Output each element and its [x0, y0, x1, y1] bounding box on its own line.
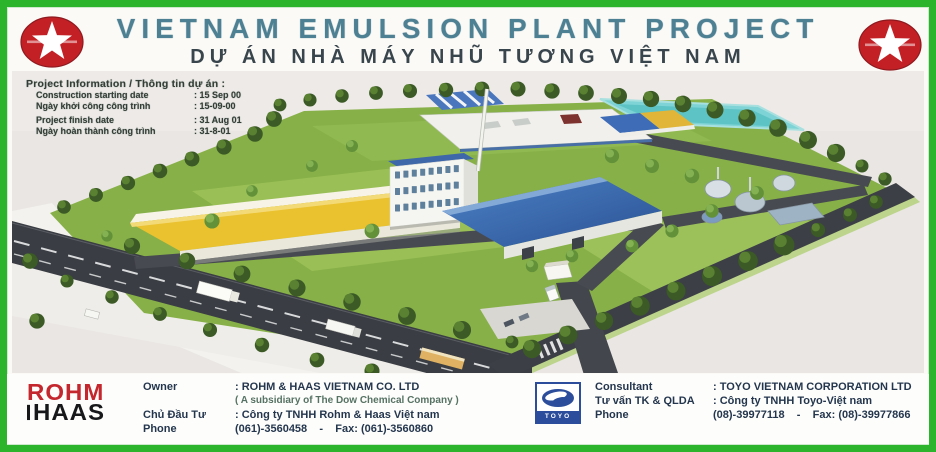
rohm-haas-logo: ROHM HAAS	[27, 383, 105, 423]
project-info-row: Ngày hoàn thành công trình : 31-8-01	[26, 126, 336, 137]
owner-row: ( A subsidiary of The Dow Chemical Compa…	[143, 394, 533, 408]
project-info-heading: Project Information / Thông tin dự án :	[26, 78, 336, 90]
red-star-logo-icon	[19, 14, 85, 70]
owner-block: Owner : ROHM & HAAS VIETNAM CO. LTD ( A …	[143, 380, 533, 436]
project-info-row: Construction starting date : 15 Sep 00	[26, 90, 336, 101]
consultant-row: Tư vấn TK & QLDA : Công ty TNHH Toyo-Việ…	[595, 394, 929, 408]
owner-row: Owner : ROHM & HAAS VIETNAM CO. LTD	[143, 380, 533, 394]
project-info-row: Project finish date : 31 Aug 01	[26, 115, 336, 126]
logo-bar-icon	[27, 405, 30, 420]
owner-row: Chủ Đầu Tư : Công ty TNHH Rohm & Haas Vi…	[143, 408, 533, 422]
red-star-logo-icon	[857, 17, 923, 73]
project-billboard: VIETNAM EMULSION PLANT PROJECT DỰ ÁN NHÀ…	[0, 0, 936, 452]
plant-aerial-rendering: Project Information / Thông tin dự án : …	[12, 71, 924, 373]
header: VIETNAM EMULSION PLANT PROJECT DỰ ÁN NHÀ…	[7, 8, 929, 70]
consultant-block: Consultant : TOYO VIETNAM CORPORATION LT…	[595, 380, 929, 422]
footer: ROHM HAAS Owner : ROHM & HAAS VIETNAM CO…	[7, 374, 929, 444]
project-info-row: Ngày khởi công công trình : 15-09-00	[26, 101, 336, 112]
consultant-row: Consultant : TOYO VIETNAM CORPORATION LT…	[595, 380, 929, 394]
owner-row: Phone (061)-3560458 - Fax: (061)-3560860	[143, 422, 533, 436]
toyo-logo-label: TOYO	[537, 411, 579, 422]
project-title: VIETNAM EMULSION PLANT PROJECT	[7, 8, 929, 45]
toyo-logo: TOYO	[535, 382, 581, 424]
consultant-row: Phone (08)-39977118 - Fax: (08)-39977866	[595, 408, 929, 422]
project-info-box: Project Information / Thông tin dự án : …	[26, 78, 336, 136]
sign-panel: VIETNAM EMULSION PLANT PROJECT DỰ ÁN NHÀ…	[7, 7, 929, 445]
project-title-vietnamese: DỰ ÁN NHÀ MÁY NHŨ TƯƠNG VIỆT NAM	[7, 46, 929, 69]
